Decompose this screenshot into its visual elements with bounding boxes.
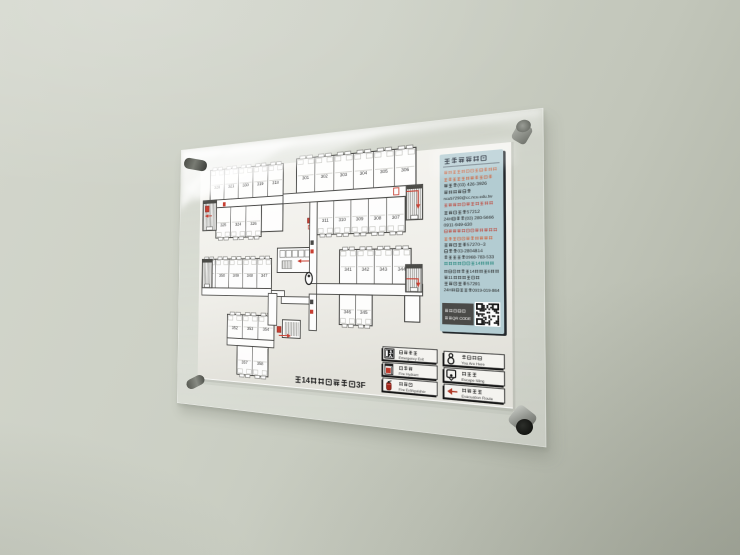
svg-text:352: 352 — [232, 325, 238, 330]
svg-text:57291: 57291 — [467, 281, 481, 286]
svg-text:349: 349 — [233, 273, 239, 278]
svg-text:303: 303 — [340, 172, 347, 178]
svg-text:14: 14 — [302, 376, 310, 385]
svg-text:0919-019-864: 0919-019-864 — [472, 288, 499, 293]
svg-text:318: 318 — [272, 180, 279, 185]
svg-text:350: 350 — [219, 273, 225, 278]
svg-text:57212: 57212 — [467, 209, 481, 215]
svg-text:301: 301 — [302, 175, 309, 180]
svg-text:305: 305 — [380, 169, 388, 175]
svg-text:353: 353 — [247, 326, 253, 331]
svg-text:306: 306 — [401, 167, 409, 173]
svg-text:0968-783-533: 0968-783-533 — [466, 254, 494, 260]
svg-text:325: 325 — [220, 222, 226, 227]
svg-text:03-2804814: 03-2804814 — [458, 248, 484, 254]
svg-text:304: 304 — [360, 170, 368, 176]
svg-text:309: 309 — [356, 216, 363, 222]
svg-text:6: 6 — [488, 269, 491, 274]
svg-text:324: 324 — [235, 222, 241, 227]
svg-text:307: 307 — [392, 214, 400, 220]
svg-text:57270~3: 57270~3 — [467, 242, 486, 248]
svg-text:311: 311 — [322, 218, 329, 223]
svg-text:345: 345 — [360, 310, 368, 315]
svg-text:348: 348 — [247, 273, 253, 278]
svg-text:342: 342 — [362, 267, 370, 272]
svg-text:344: 344 — [398, 266, 406, 271]
svg-text:302: 302 — [321, 174, 328, 180]
svg-text:347: 347 — [261, 273, 267, 278]
svg-text:24H: 24H — [444, 216, 452, 221]
svg-text:346: 346 — [344, 309, 351, 314]
svg-text:0911-949-630: 0911-949-630 — [444, 222, 473, 228]
svg-text:24H: 24H — [444, 287, 452, 292]
svg-text:11: 11 — [448, 275, 453, 280]
svg-text:14: 14 — [470, 269, 475, 274]
svg-text:319: 319 — [257, 181, 263, 186]
svg-text:358: 358 — [257, 361, 263, 366]
svg-text:14: 14 — [475, 261, 481, 266]
svg-text:QR CODE: QR CODE — [452, 317, 471, 322]
svg-text:343: 343 — [379, 266, 387, 271]
svg-text:341: 341 — [344, 267, 351, 272]
svg-text:308: 308 — [374, 215, 382, 221]
svg-text:3F: 3F — [356, 380, 366, 390]
svg-text:326: 326 — [250, 221, 256, 226]
svg-text:310: 310 — [339, 217, 346, 222]
svg-text:357: 357 — [241, 360, 247, 365]
svg-text:354: 354 — [263, 327, 269, 332]
